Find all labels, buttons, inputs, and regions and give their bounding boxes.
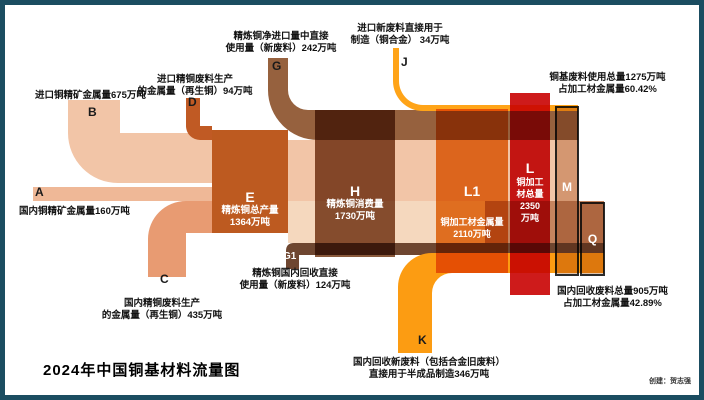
flow-g1-label-line2: 使用量（新废料）124万吨 bbox=[215, 280, 375, 292]
flow-g-letter: G bbox=[272, 59, 281, 73]
flow-c-label-line2: 的金属量（再生铜）435万吨 bbox=[82, 310, 242, 322]
flow-g1-label-line1: 精炼铜国内回收直接 bbox=[215, 268, 375, 280]
flow-k-label-line1: 国内回收新废料（包括合金旧废料） bbox=[329, 357, 529, 369]
flow-d-label: 进口精铜废料生产 的金属量（再生铜）94万吨 bbox=[115, 74, 275, 98]
summary-m-label-line2: 占加工材金属量60.42% bbox=[525, 84, 690, 96]
summary-q-letter: Q bbox=[581, 233, 604, 245]
flow-d-label-line1: 进口精铜废料生产 bbox=[115, 74, 275, 86]
flow-k-label: 国内回收新废料（包括合金旧废料） 直接用于半成品制造346万吨 bbox=[329, 357, 529, 381]
summary-q-label-line2: 占加工材金属量42.89% bbox=[530, 298, 695, 310]
node-l1-name: 铜加工材金属量 bbox=[436, 216, 508, 228]
node-h-name: 精炼铜消费量 bbox=[315, 199, 395, 211]
node-l1-sublabel: 铜加工材金属量 2110万吨 bbox=[436, 216, 508, 240]
sankey-diagram-canvas: A B C D G G1 J K 进口铜精矿金属量675万吨 国内铜精矿金属量1… bbox=[0, 0, 704, 400]
node-l-name-line1: 铜加工 bbox=[510, 176, 550, 188]
flow-c-label-line1: 国内精铜废料生产 bbox=[82, 298, 242, 310]
node-l-value-line2: 万吨 bbox=[510, 212, 550, 224]
flow-j-label-line1: 进口新废料直接用于 bbox=[320, 23, 480, 35]
flow-d-label-line2: 的金属量（再生铜）94万吨 bbox=[115, 86, 275, 98]
node-e-name: 精炼铜总产量 bbox=[212, 205, 288, 217]
node-l1-label: L1 bbox=[436, 183, 508, 199]
flow-c-label: 国内精铜废料生产 的金属量（再生铜）435万吨 bbox=[82, 298, 242, 322]
flow-k-label-line2: 直接用于半成品制造346万吨 bbox=[329, 369, 529, 381]
node-e-value: 1364万吨 bbox=[212, 217, 288, 229]
flow-a-label: 国内铜精矿金属量160万吨 bbox=[19, 206, 130, 218]
node-l-name-line2: 材总量 bbox=[510, 188, 550, 200]
summary-m-letter: M bbox=[556, 181, 578, 193]
flow-b-letter: B bbox=[88, 105, 97, 119]
node-h-label: H 精炼铜消费量 1730万吨 bbox=[315, 183, 395, 223]
node-h-value: 1730万吨 bbox=[315, 211, 395, 223]
flow-c-band bbox=[148, 201, 212, 277]
flow-j-label-line2: 制造（铜合金） 34万吨 bbox=[320, 35, 480, 47]
node-l-letter: L bbox=[510, 160, 550, 176]
summary-q-label-line1: 国内回收废料总量905万吨 bbox=[530, 286, 695, 298]
flow-g1-letter: G1 bbox=[283, 251, 296, 262]
flow-a-band bbox=[33, 187, 212, 201]
node-e-letter: E bbox=[212, 189, 288, 205]
flow-j-label: 进口新废料直接用于 制造（铜合金） 34万吨 bbox=[320, 23, 480, 47]
summary-q-label: 国内回收废料总量905万吨 占加工材金属量42.89% bbox=[530, 286, 695, 310]
node-l-label: L 铜加工 材总量 2350 万吨 bbox=[510, 160, 550, 224]
chart-title: 2024年中国铜基材料流量图 bbox=[43, 359, 240, 380]
flow-c-letter: C bbox=[160, 272, 169, 286]
node-h-letter: H bbox=[315, 183, 395, 199]
summary-m-label: 铜基废料使用总量1275万吨 占加工材金属量60.42% bbox=[525, 72, 690, 96]
flow-g1-label: 精炼铜国内回收直接 使用量（新废料）124万吨 bbox=[215, 268, 375, 292]
flow-a-letter: A bbox=[35, 185, 44, 199]
node-e-label: E 精炼铜总产量 1364万吨 bbox=[212, 189, 288, 229]
node-l1-letter: L1 bbox=[436, 183, 508, 199]
node-l1-value: 2110万吨 bbox=[436, 228, 508, 240]
flow-j-letter: J bbox=[401, 55, 408, 69]
flow-k-letter: K bbox=[418, 333, 427, 347]
node-l-value-line1: 2350 bbox=[510, 200, 550, 212]
summary-m-label-line1: 铜基废料使用总量1275万吨 bbox=[525, 72, 690, 84]
credit-text: 创建：贺志强 bbox=[605, 376, 691, 386]
